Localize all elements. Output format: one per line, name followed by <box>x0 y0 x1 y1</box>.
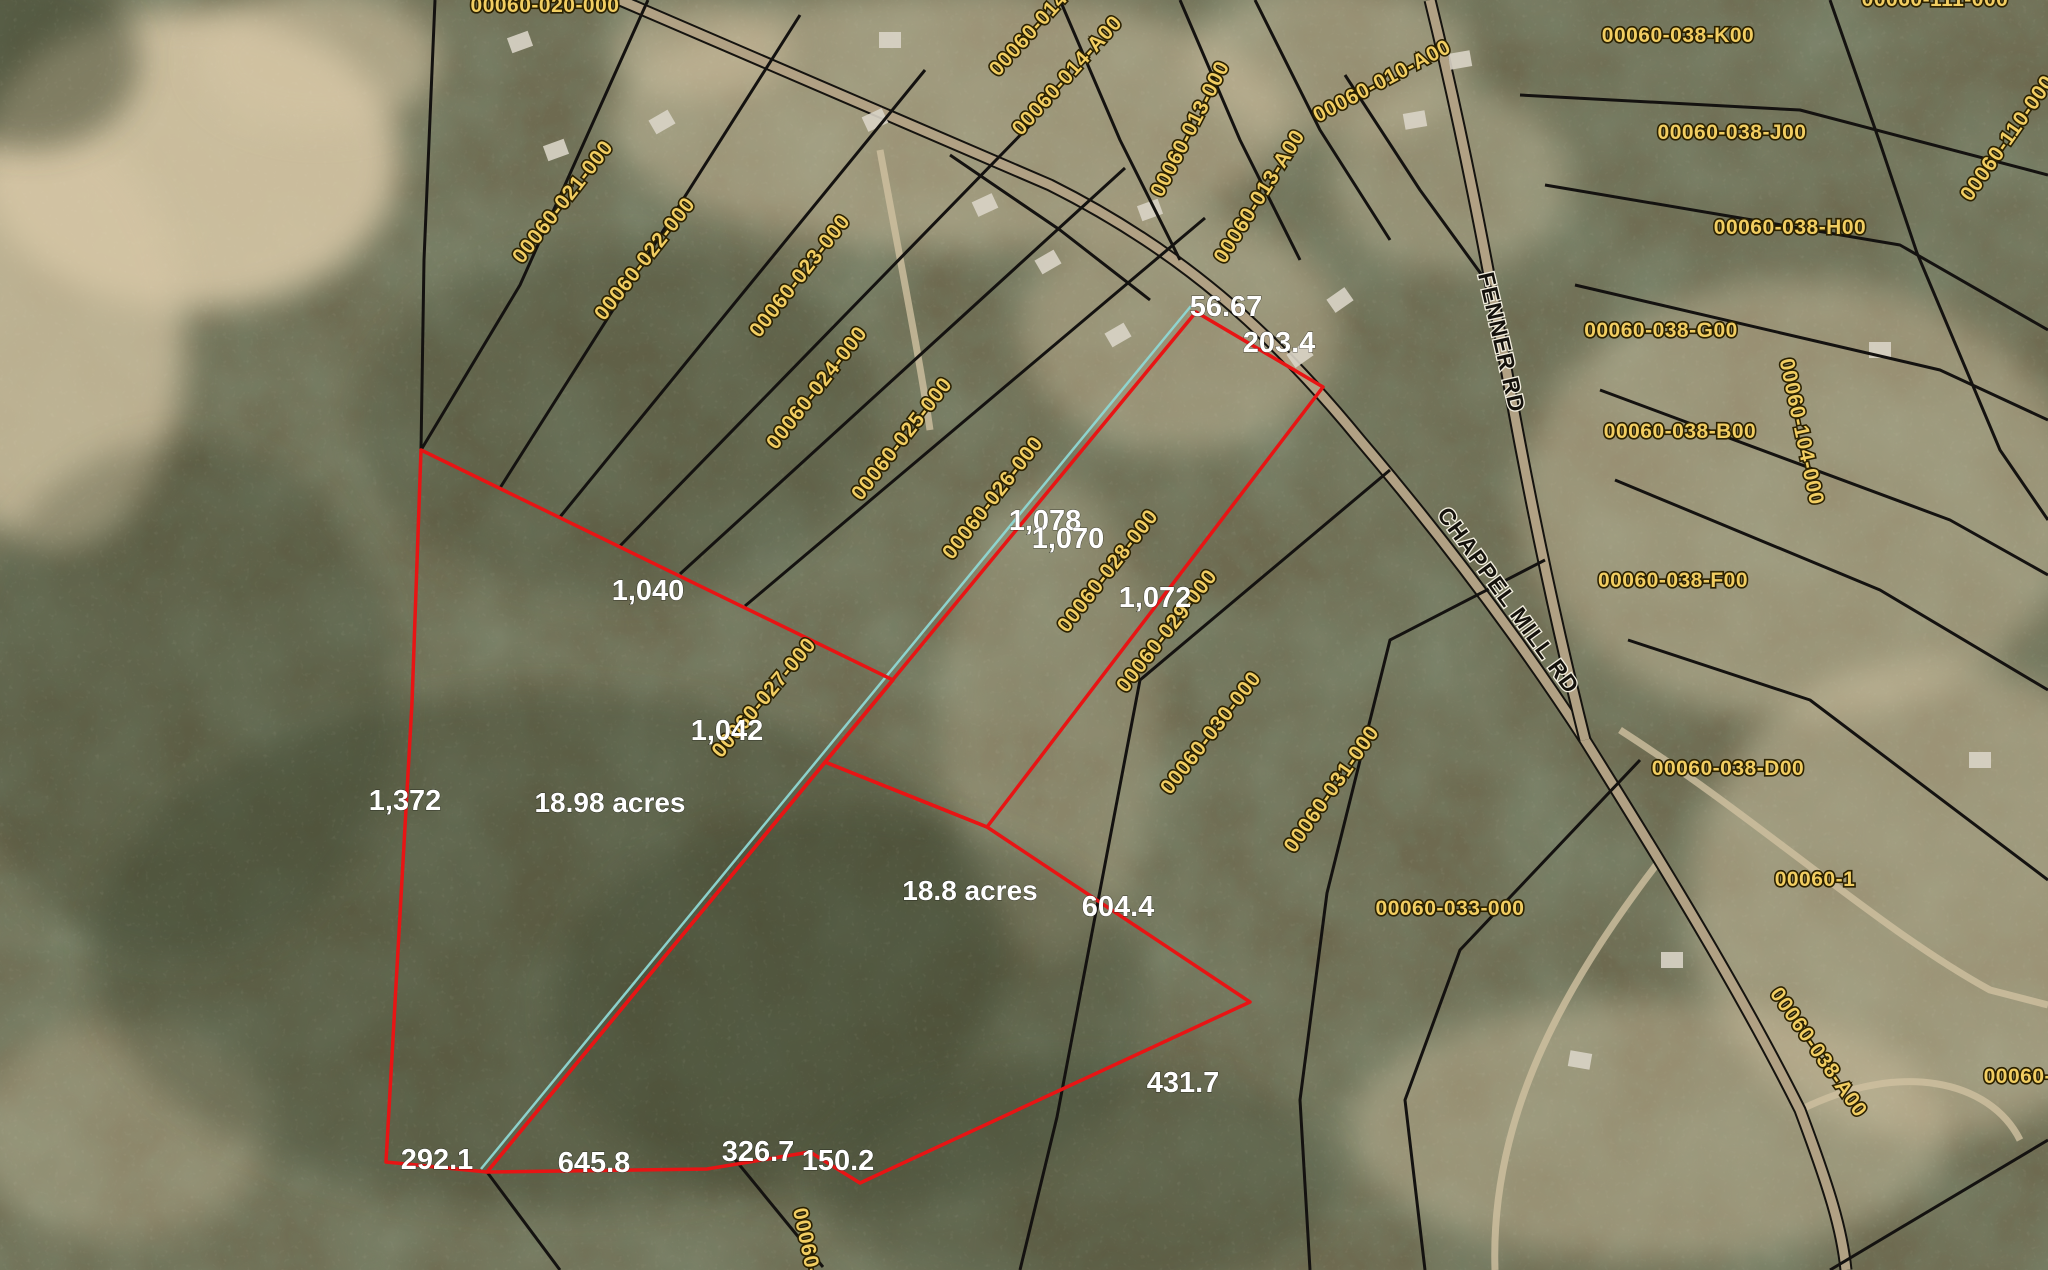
dimension-label: 150.2 <box>802 1145 875 1177</box>
parcel-id-label: 00060-10 <box>1984 1065 2048 1088</box>
parcel-id-label: 00060-038-H00 <box>1714 216 1866 239</box>
parcel-id-label: 00060-020-000 <box>471 0 620 17</box>
map-canvas[interactable]: 00060-020-00000060-021-00000060-022-0000… <box>0 0 2048 1270</box>
acreage-label: 18.98 acres <box>534 787 685 818</box>
parcel-id-label: 00060-038-G00 <box>1584 319 1738 342</box>
building-roof <box>879 32 901 48</box>
map-viewport[interactable]: 00060-020-00000060-021-00000060-022-0000… <box>0 0 2048 1270</box>
dimension-label: 431.7 <box>1147 1067 1220 1099</box>
dimension-label: 56.67 <box>1190 291 1263 323</box>
dimension-label: 645.8 <box>558 1147 631 1179</box>
aerial-background <box>0 0 2048 1270</box>
dimension-label: 1,040 <box>612 575 685 607</box>
parcel-id-label: 00060-038-F00 <box>1598 569 1748 592</box>
parcel-id-label: 00060-038-D00 <box>1652 757 1804 780</box>
parcel-id-label: 00060-033-000 <box>1376 897 1525 920</box>
dimension-label: 1,070 <box>1032 523 1105 555</box>
dimension-label: 292.1 <box>401 1144 474 1176</box>
building-roof <box>1969 752 1991 768</box>
dimension-label: 326.7 <box>722 1136 795 1168</box>
dimension-label: 1,372 <box>369 785 442 817</box>
dimension-label: 604.4 <box>1082 891 1155 923</box>
building-roof <box>1661 952 1683 968</box>
parcel-id-label: 00060-111-000 <box>1862 0 2009 11</box>
dimension-label: 203.4 <box>1243 327 1316 359</box>
parcel-id-label: 00060-038-J00 <box>1658 121 1807 144</box>
dimension-label: 1,072 <box>1119 582 1192 614</box>
dimension-label: 1,042 <box>691 715 764 747</box>
parcel-id-label: 00060-1 <box>1775 868 1856 891</box>
acreage-label: 18.8 acres <box>902 875 1037 906</box>
parcel-id-label: 00060-038-K00 <box>1602 24 1754 47</box>
parcel-id-label: 00060-038-B00 <box>1604 420 1756 443</box>
